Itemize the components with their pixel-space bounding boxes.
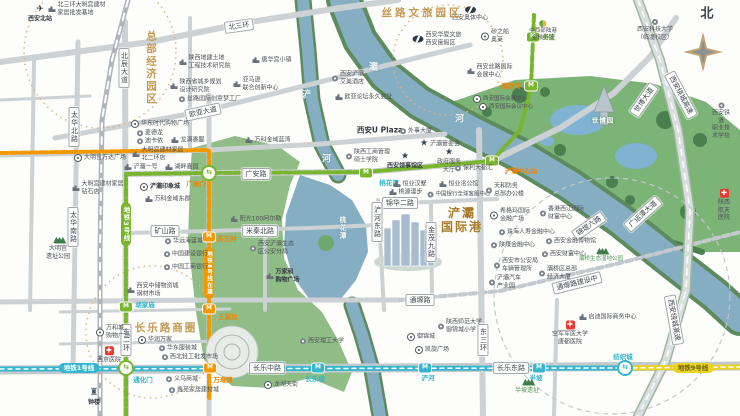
poi-label: 砂之船 奥莱 [491,29,509,44]
poi-label: 大明宫建材家居 北二环店 [141,147,183,162]
road-sign: 锦华二路 [382,197,418,209]
poi-label: 华东服装城 [167,344,197,352]
cross-icon: ✚ [720,189,729,198]
bld-icon [266,273,273,279]
poi-label: 阳光100阿尔勒 [240,215,281,223]
bld-icon [439,181,446,187]
map-overlay: 北三环北辰大道太华北路欧亚大道广安路太华南路矿山路米秦北路锦华二路浐河东路金茂九… [0,0,740,416]
logo-icon [464,6,475,13]
area-label-silk-road-culture-park: 丝路文旅园区 [382,7,463,19]
road-sign: 广安路 [242,168,271,180]
metro-station-label: 纺织城 [613,351,633,361]
map-poi: ★西安领事馆区 [387,152,423,170]
poi-label: 龙湖天街 [274,381,298,389]
bld-icon [171,137,178,143]
map-poi: 阳光100阿尔勒 [231,215,281,223]
map-poi: 香港西江国际 财富中心 [540,206,584,221]
metro-line-label: 地铁9号线 [673,363,714,373]
cross-icon: ✚ [565,321,574,330]
area-label-changle-road-business-circle: 长乐路商圈 [135,322,198,334]
poi-label: 浐灞印象城 [150,183,180,191]
bld-icon [467,68,474,74]
bld-icon [335,94,342,100]
circ-icon [546,238,552,244]
circ-icon [250,245,256,251]
map-poi: 西安金融博物馆 [546,237,596,245]
map-poi: 西安丝路国际 会展中心 [467,64,512,79]
map-poi: ▲▲▲灞桥生态湿地公园 [579,247,623,263]
map-poi: 珠海人寿金融中心 [499,228,555,236]
metro-station-label: 浐灞中心站 [505,165,538,175]
map-poi: ✚陕西 航天医院 [716,189,732,222]
poi-label: 中国银行全球客服中心 [435,192,490,199]
road-sign: 西安绕城高速 [664,70,698,120]
map-poi: 西安浐灞 艾美酒店 [332,71,364,86]
poi-label: 空军军医大学 唐都医院 [552,331,588,346]
north-label: 北 [700,8,715,23]
circ-icon [455,165,461,171]
road-sign: 广运潭大道 [623,195,663,233]
poi-label: 外事大厦 [408,127,432,135]
map-poi: 陕西工商管理 硕士学院 [346,149,390,164]
ring-icon [96,328,104,336]
poi-label: 西安丝路国际 会展中心 [476,64,512,79]
circ-icon [438,323,444,329]
poi-label: 陕西工商管理 硕士学院 [354,149,390,164]
road-sign: 欧亚大道 [184,102,222,121]
map-poi: 华东服装城 [159,344,197,352]
poi-label: 西安中储物资城 钢材市场 [136,283,178,298]
bld-icon [72,185,79,191]
circ-icon [166,376,172,382]
bld-icon [231,216,238,222]
bld-icon [127,287,134,293]
poi-label: 湖畔嘉园 [174,163,198,171]
map-poi: 大明宫建材家居 北二环店 [132,147,183,162]
poi-label: 华东时代购物广场 [141,120,189,128]
ring-icon [479,103,487,111]
road-sign: 米秦北路 [242,225,278,237]
map-poi: 唐华宫小镇 [252,56,291,64]
river-label: 河 [455,112,465,125]
map-poi: 凯旋广场 [415,346,449,354]
map-poi: 华润万家 [138,336,172,344]
poi-label: 西安浐灞 艾美酒店 [340,71,364,86]
map-poi: 陕煤金融中心 [491,241,535,249]
metro-station: M [202,232,216,243]
map-poi: 天和防务 总部办公楼 [486,183,524,198]
circ-icon [137,130,143,136]
bell-icon: ♜ [90,388,99,398]
circ-icon [300,338,306,344]
dlogo-icon [539,20,546,27]
ring-icon [74,154,82,162]
bld-icon [389,189,396,195]
ring-icon [138,336,146,344]
circ-icon [137,138,143,144]
poi-label: 西安U Plaza [357,125,403,134]
poi-label: 珠海人寿金融中心 [507,228,555,236]
bld-icon [252,57,259,63]
poi-label: 恒业汉墅 [402,180,426,188]
poi-label: 天和防务 总部办公楼 [494,183,524,198]
map-poi: 西安理工大学 [300,337,344,345]
poi-label: 御锦城 [417,333,435,341]
map-poi: 砂之船 奥莱 [481,29,509,44]
bld-icon [233,81,240,87]
poi-label: 中国工商银行 [172,263,208,271]
bld-icon [132,151,139,157]
map-poi: 鑫苑家居建材城 [169,386,219,394]
circ-icon [169,387,175,393]
poi-label: 浐灞汽车 产业园 [497,275,521,290]
poi-label: 万科金域东郡 [154,195,190,203]
map-poi: 丝路国际创意梦工厂 [179,95,241,103]
map-poi: 麦德龙 [137,129,163,137]
ring-icon [407,333,415,341]
metro-station-label: 通化门 [133,374,153,384]
circ-icon [346,153,352,159]
poi-label: 万和城 购物广场 [106,325,130,340]
map-poi: 亚马逊 联合创新中心 [233,77,278,92]
map-poi: 陕西地建土地 工程技术研究院 [179,55,230,70]
road-sign: 世博大道 [629,82,659,118]
metro-line-label: 地铁1号线 [59,363,100,373]
ring-icon [140,183,148,191]
ring-icon [473,95,481,103]
map-poi: 陕西师范大学 御锦城小学 [438,319,482,334]
map-poi: 大明宫万达广场 [74,154,126,162]
map-poi: ✚空军军医大学 唐都医院 [552,321,588,346]
map-poi: ♜钟楼 [88,388,100,407]
poi-label: 大明宫建材家居 钻石店 [81,181,123,196]
bld-icon [145,196,152,202]
poi-label: 万家和 购物广场 [275,269,299,284]
circ-icon [652,19,658,25]
poi-label: 欧亚论坛永久会址 [344,93,392,101]
poi-label: 唐华宫小镇 [261,56,291,64]
poi-label: 龙湖香醍 [180,136,204,144]
circ-icon [718,103,724,109]
circ-icon [427,192,433,198]
metro-station-label: 胡家庙 [135,299,155,309]
map-poi: 欧亚论坛永久会址 [335,93,392,101]
poi-label: 桃源漫步 [398,188,422,196]
star-icon: ★ [445,149,453,158]
poi-label: 半坡遗址 [515,387,539,395]
road-sign: 北辰大道 [119,48,130,88]
ring-icon [264,381,272,389]
city-map: 北三环北辰大道太华北路欧亚大道广安路太华南路矿山路米秦北路锦华二路浐河东路金茂九… [0,0,740,416]
trees-icon: ▲▲▲ [53,236,62,244]
map-poi: 迪卡侬 [137,137,163,145]
map-poi: 浐灞印象城 [140,183,180,191]
river-label: 河 [322,152,332,165]
bld-icon [48,6,55,12]
circ-icon [159,345,165,351]
metro-station: M [359,168,373,179]
bld-icon [165,164,172,170]
circ-icon [486,187,492,193]
circ-icon [542,251,548,257]
poi-label: 大明宫 遗址公园 [46,245,70,260]
poi-label: 西安科技大学 （临潼校区） [637,26,673,41]
metro-station-label: 王家坟 [218,311,238,321]
star-icon: ★ [401,152,409,161]
circ-icon [162,354,168,360]
metro-station-label: 万寿路 [213,374,233,384]
map-poi: 万科金域蓝湾 [245,136,290,144]
metro-station: M [311,363,325,374]
road-sign: 长乐中路 [249,362,285,374]
circ-icon [499,229,505,235]
map-poi: 大明宫建材家居 钻石店 [72,181,123,196]
train-icon: ✈ [36,5,44,14]
compass-rose-icon [681,30,725,74]
circ-icon [179,96,185,102]
river-label: 灞 [369,60,379,73]
map-poi: 御锦城 [407,333,435,341]
ring-icon [490,211,498,219]
bld-icon [393,181,400,187]
map-poi: 西安华夏文旅 西安度假区 [412,32,461,47]
metro-station: M [202,304,216,315]
circ-icon [400,128,406,134]
poi-label: 钟楼 [88,399,100,407]
map-poi: 恒业洺公馆 [439,180,478,188]
poi-label: 西北轻工批发市场 [170,353,218,361]
road-sign: 长乐东路 [493,362,529,374]
poi-label: 鑫苑家居建材城 [177,386,219,394]
trees-icon: ▲▲▲ [522,378,531,386]
poi-label: 凯旋广场 [425,346,449,354]
metro-station: M [119,302,133,313]
river-label: 浐 [302,88,312,101]
poi-label: 中国建设银行 [172,250,208,258]
metro-station-label: 浐河 [422,372,435,382]
map-poi: 西安U Plaza [357,125,403,134]
poi-label: 启迪国际商务中心 [588,313,636,321]
map-poi: 西安市公安局 车辆管理所 [494,258,538,273]
circ-icon [165,238,171,244]
map-poi: 浐灞一号 [124,163,157,171]
poi-label: 陕西地建土地 工程技术研究院 [188,55,230,70]
map-poi: 恒业汉墅 [393,180,426,188]
road-sign: 通塬路 [406,294,435,306]
poi-label: 灞桥区总部 经济大厦 [547,266,577,281]
bld-icon [179,59,186,65]
poi-label: 陕西省城乡规划 设计研究院 [179,79,221,94]
poi-label: 万科金域蓝湾 [254,136,290,144]
metro-station-label: 长乐坡 [305,373,325,383]
map-poi: 西安国际会议中心 [479,103,533,111]
poi-label: 西安领事馆区 [387,162,423,170]
star-icon: ★ [420,140,428,149]
map-poi: 西安科技大学 （临潼校区） [637,19,673,41]
map-poi: 中国工商银行 [164,263,208,271]
map-poi: 中国银行全球客服中心 [427,192,490,199]
poi-label: 西安华夏文旅 西安度假区 [425,32,461,47]
road-sign: 北三环 [224,18,254,34]
cross-icon: ✚ [104,346,113,355]
map-poi: 万科金域东郡 [145,195,190,203]
area-label-headquarters-economic-zone: 总部经济园区 [145,31,157,106]
poi-label: 中西部陆港 金融小镇 [529,28,557,42]
map-poi: 浐灞汽车 产业园 [489,275,521,290]
metro-station-label: 苏王村 [217,233,237,243]
circ-icon [164,251,170,257]
ring-icon [415,346,423,354]
ring-icon [481,32,489,40]
poi-label: 西安国际会议中心 [489,104,533,111]
map-poi: 西安中储物资城 钢材市场 [127,283,178,298]
map-poi: 桃源漫步 [389,188,422,196]
poi-label: 华润万家 [148,336,172,344]
metro-station-label: 香湖湾 [501,80,521,90]
poi-label: 华远海蓝城 [173,237,203,245]
poi-label: 恒业洺公馆 [448,180,478,188]
map-poi: 保利大都汇 [455,164,493,172]
map-poi: 希格玛国际 金融广场 [490,208,530,223]
map-poi: 华东时代购物广场 [131,120,189,128]
bld-icon [170,83,177,89]
poi-label: 西京医院 [97,356,121,364]
map-poi: 义乌商城 [166,375,198,383]
map-poi: 龙湖香醍 [171,136,204,144]
poi-label: 西安理工大学 [308,337,344,345]
area-label-expo-park: 世博园 [592,117,615,124]
map-poi: 西安浐灞生态 区公安分局 [250,241,294,256]
poi-label: 大明宫万达广场 [84,154,126,162]
bld-icon [579,314,586,320]
poi-label: 陕西师范大学 御锦城小学 [446,319,482,334]
bld-icon [245,137,252,143]
map-poi: ✚西京医院 [97,346,121,364]
map-poi: 龙湖天街 [264,381,298,389]
poi-label: 保利大都汇 [463,164,493,172]
road-sign: 太华北路 [69,107,80,147]
poi-label: 迪卡侬 [145,137,163,145]
logo-icon [412,36,423,43]
ring-icon [131,120,139,128]
circ-icon [491,242,497,248]
map-poi: 华远海蓝城 [165,237,203,245]
metro-station: M [524,81,538,92]
poi-label: 西安铁道 职业技术学校 [712,110,731,140]
map-poi: 北三环大明宫建材 家居批发基地 [48,2,105,17]
map-poi: ▲▲▲大明宫 遗址公园 [46,236,70,260]
map-poi: 陕西省城乡规划 设计研究院 [170,79,221,94]
poi-label: 西安市公安局 车辆管理所 [502,258,538,273]
poi-label: 麦德龙 [145,129,163,137]
map-poi: 中西部陆港 金融小镇 [529,20,557,42]
circ-icon [332,75,338,81]
map-poi: 灞桥区总部 经济大厦 [539,266,577,281]
poi-label: 西安金融博物馆 [554,237,596,245]
bld-icon [124,164,131,170]
metro-station: M [203,363,217,374]
poi-label: 丝路国际创意梦工厂 [187,95,241,103]
metro-interchange-station: ⇆ [617,360,633,376]
map-poi: 中国建设银行 [164,250,208,258]
trees-icon: ▲▲▲ [596,247,605,255]
map-poi: 西安铁道 职业技术学校 [712,103,731,140]
road-sign: 西安绕城高速 [664,294,685,345]
circ-icon [489,279,495,285]
poi-label: 希格玛国际 金融广场 [500,208,530,223]
road-sign: 浐河东路 [372,202,383,242]
circ-icon [164,264,170,270]
poi-label: 浐灞一号 [133,163,157,171]
circ-icon [540,210,546,216]
map-poi: 湖畔嘉园 [165,163,198,171]
road-sign: 金茂九路 [426,222,437,262]
metro-line-label: 地铁3号线 [121,202,131,246]
map-poi: 西安国际会展中心 [473,95,527,103]
map-poi: ★浐灞管委会 [420,140,460,149]
road-sign: 矿山路 [151,225,180,237]
map-poi: 启迪国际商务中心 [579,313,636,321]
map-poi: ▲▲▲半坡遗址 [515,378,539,395]
area-label-chanba-international-port: 浐灞 国际港 [441,207,483,235]
poi-label: 北三环大明宫建材 家居批发基地 [57,2,105,17]
poi-label: 西安国际会展中心 [483,96,527,103]
map-poi: 西北轻工批发市场 [162,353,218,361]
poi-label: 灞桥生态湿地公园 [579,256,623,263]
river-label: 桃花潭 [338,216,348,240]
map-poi: 万和城 购物广场 [96,325,130,340]
map-poi: 外事大厦 [400,127,432,135]
map-poi: 万家和 购物广场 [266,269,299,284]
circ-icon [539,270,545,276]
metro-station-label: 广泰门 [186,178,206,188]
poi-label: 香港西江国际 财富中心 [548,206,584,221]
poi-label: 亚马逊 联合创新中心 [242,77,278,92]
poi-label: 义乌商城 [174,375,198,383]
circ-icon [494,262,500,268]
poi-label: 陕煤金融中心 [499,241,535,249]
poi-label: 西安浐灞生态 区公安分局 [258,241,294,256]
poi-label: 陕西 航天医院 [716,199,732,222]
